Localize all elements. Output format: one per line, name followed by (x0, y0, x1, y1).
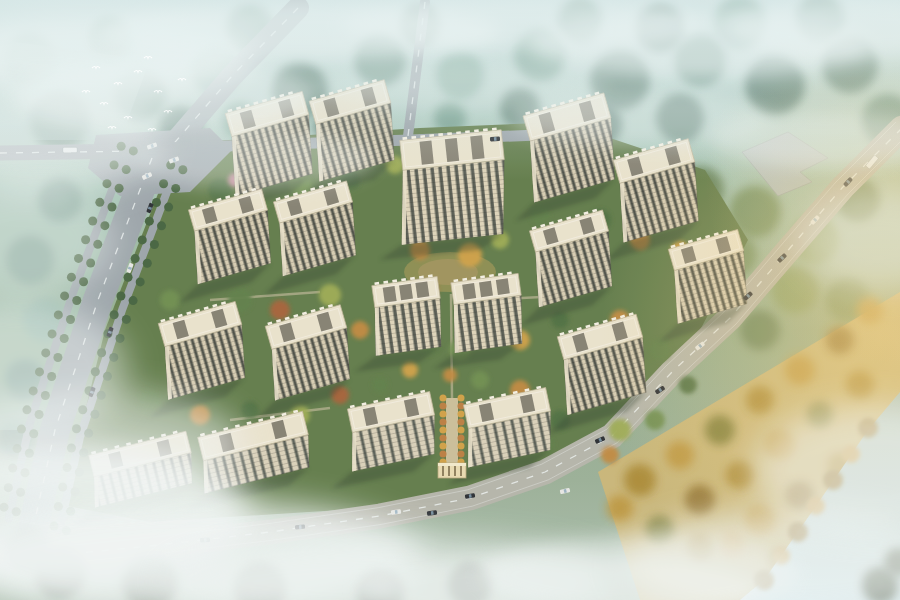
aerial-rendering-canvas (0, 0, 900, 600)
aerial-scene (0, 0, 900, 600)
global-haze-wash (0, 0, 900, 600)
